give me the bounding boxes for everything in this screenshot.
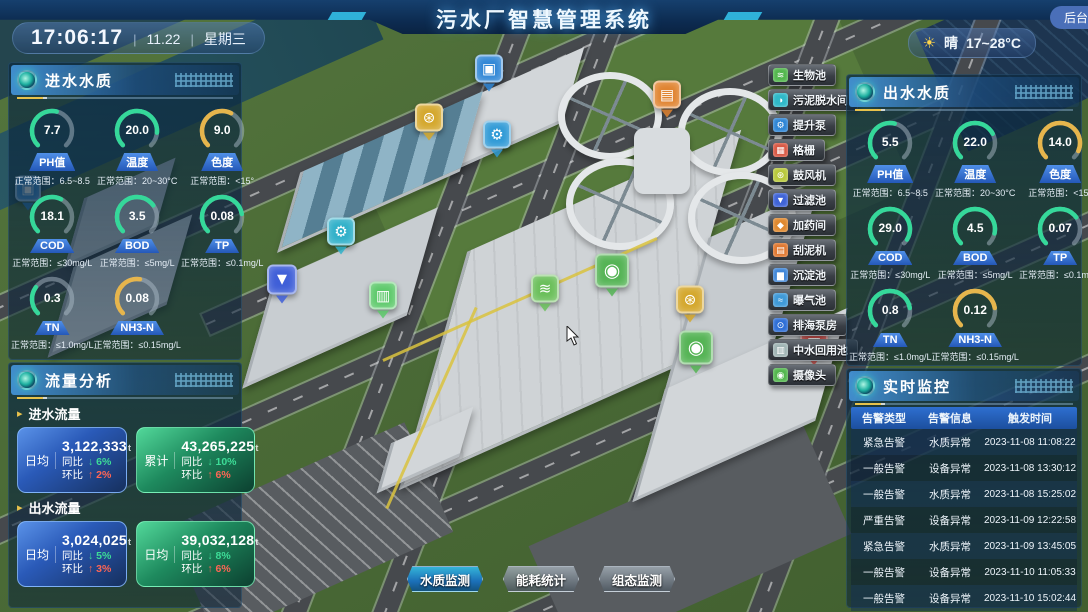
gauge: 0.08 NH3-N 正常范围：≤0.15mg/L [93, 273, 180, 351]
gauge-value: 20.0 [111, 123, 163, 137]
marker-dosing-icon: ▤ [653, 81, 681, 109]
triangle-icon: ▸ [17, 407, 23, 420]
marker-reuse[interactable]: ▥ [369, 282, 397, 325]
mouse-cursor [566, 326, 582, 351]
gauge: 9.0 色度 正常范围：<15° [181, 105, 263, 187]
gauge-range: 正常范围：≤30mg/L [12, 256, 92, 269]
alarm-type: 一般告警 [851, 591, 917, 606]
section-emblem-icon [17, 70, 37, 90]
grid-screen-icon: ▦ [773, 143, 788, 157]
gauge-range: 正常范围：<15° [1028, 186, 1088, 199]
flow-group-label: ▸ 进水流量 [17, 404, 233, 423]
gauge-value: 18.1 [26, 209, 78, 223]
marker-fan[interactable]: ⊛ [415, 104, 443, 147]
compare-label: 同比 [62, 550, 83, 563]
gauge-label: PH值 [29, 153, 75, 171]
section-underline [17, 97, 233, 99]
section-title: 出水水质 [883, 82, 951, 103]
facility-label: 格栅 [793, 142, 815, 158]
marker-pointer [690, 366, 702, 380]
tab-water-quality-monitor[interactable]: 水质监测 [407, 566, 483, 592]
alarm-time: 2023-11-09 13:45:05 [983, 541, 1077, 552]
flow-compare-row: 环比 ↑ 2% [62, 469, 131, 482]
gauge-range: 正常范围：20~30°C [97, 174, 177, 187]
marker-pool[interactable]: ≋ [531, 275, 559, 318]
section-title: 流量分析 [45, 370, 113, 391]
gauge-value: 5.5 [864, 135, 916, 149]
sun-icon: ☀ [923, 34, 936, 52]
flow-compare-row: 环比 ↑ 6% [181, 563, 258, 576]
facility-label: 摄像头 [793, 367, 826, 383]
marker-filter-icon: ▼ [267, 265, 297, 295]
gauge-range: 正常范围：≤5mg/L [100, 256, 175, 269]
arrow-up-icon: ↑ 6% [207, 563, 230, 576]
section-emblem-icon [17, 370, 37, 390]
gauge: 7.7 PH值 正常范围：6.5~8.5 [11, 105, 93, 187]
flow-value: 3,024,025t [62, 532, 131, 550]
alarm-time: 2023-11-08 11:08:22 [983, 437, 1077, 448]
alarm-time: 2023-11-10 15:02:44 [983, 593, 1077, 604]
alarm-row: 紧急告警 水质异常 2023-11-09 13:45:05 [851, 533, 1077, 559]
gauge: 20.0 温度 正常范围：20~30°C [93, 105, 180, 187]
facility-camera[interactable]: ◉ 摄像头 [768, 364, 836, 386]
gauge-range: 正常范围：6.5~8.5 [15, 174, 90, 187]
section-title: 实时监控 [883, 376, 951, 397]
gauge-label: PH值 [867, 165, 913, 183]
marker-pointer [335, 247, 347, 261]
alarm-column-header: 告警类型 [851, 410, 917, 426]
facility-label: 加药间 [793, 217, 826, 233]
facility-sea-pump[interactable]: ⊙ 排海泵房 [768, 314, 847, 336]
marker-camera[interactable]: ◉ [595, 254, 629, 303]
flow-card: 日均 39,032,128t 同比 ↓ 8% 环比 ↑ 6% [136, 521, 254, 587]
clock-date: 11.22 [146, 31, 180, 47]
alarm-time: 2023-11-08 15:25:02 [983, 489, 1077, 500]
gauge-value: 0.3 [26, 291, 78, 305]
marker-fan-icon: ⊛ [676, 286, 704, 314]
gauge-dial: 0.07 [1034, 203, 1086, 255]
weather-condition: 晴 [944, 33, 958, 53]
gauge: 0.08 TP 正常范围：≤0.1mg/L [181, 191, 263, 269]
arrow-down-icon: ↓ 6% [88, 456, 111, 469]
bottom-tab-bar: 水质监测能耗统计组态监测 [407, 566, 675, 592]
flow-card-data: 43,265,225t 同比 ↓ 10% 环比 ↑ 6% [181, 438, 258, 482]
flow-group-label: ▸ 出水流量 [17, 498, 233, 517]
flow-metric-label: 累计 [144, 452, 175, 469]
marker-fan-icon: ⊛ [415, 104, 443, 132]
flow-compare-row: 同比 ↓ 6% [62, 456, 131, 469]
facility-blower-fan[interactable]: ⊛ 鼓风机 [768, 164, 836, 186]
alarm-column-header: 触发时间 [983, 410, 1077, 426]
alarm-table-body: 紧急告警 水质异常 2023-11-08 11:08:22一般告警 设备异常 2… [847, 429, 1081, 611]
marker-filter[interactable]: ▼ [267, 265, 297, 310]
gauge-dial: 5.5 [864, 117, 916, 169]
facility-label: 沉淀池 [793, 267, 826, 283]
alarm-row: 一般告警 设备异常 2023-11-10 11:05:33 [851, 559, 1077, 585]
flow-compare-row: 同比 ↓ 10% [181, 456, 258, 469]
flow-group-title: 出水流量 [29, 498, 81, 517]
facility-mud-scraper[interactable]: ▤ 刮泥机 [768, 239, 836, 261]
clarifier-tank [678, 88, 782, 176]
flow-groups: ▸ 进水流量 日均 3,122,333t 同比 ↓ 6% 环比 ↑ 2% 累计 [9, 404, 241, 587]
compare-label: 环比 [62, 469, 83, 482]
facility-label: 中水回用池 [793, 342, 848, 358]
facility-reuse-pool[interactable]: ▥ 中水回用池 [768, 339, 858, 361]
section-underline [855, 109, 1073, 111]
gauge: 18.1 COD 正常范围：≤30mg/L [11, 191, 93, 269]
marker-pointer [539, 304, 551, 318]
flow-cards: 日均 3,122,333t 同比 ↓ 6% 环比 ↑ 2% 累计 43,265,… [17, 427, 233, 493]
flow-analysis-panel: 流量分析 ▸ 进水流量 日均 3,122,333t 同比 ↓ 6% 环比 ↑ 2… [8, 362, 242, 608]
marker-pump[interactable]: ⚙ [483, 121, 511, 164]
marker-pointer [491, 150, 503, 164]
marker-pool-icon: ▣ [475, 55, 503, 83]
weather-widget: ☀ 晴 17~28°C [908, 28, 1036, 58]
alarm-time: 2023-11-10 11:05:33 [983, 567, 1077, 578]
gauge-range: 正常范围：≤30mg/L [850, 268, 930, 281]
alarm-type: 一般告警 [851, 565, 917, 580]
gauge-dial: 22.0 [949, 117, 1001, 169]
facility-legend: ≋ 生物池◑ 污泥脱水间⚙ 提升泵▦ 格栅⊛ 鼓风机▼ 过滤池◆ 加药间▤ 刮泥… [768, 64, 858, 386]
gauge: 14.0 色度 正常范围：<15° [1019, 117, 1088, 199]
facility-filter-pool[interactable]: ▼ 过滤池 [768, 189, 836, 211]
section-underline [855, 403, 1073, 405]
clock-weekday: 星期三 [204, 29, 246, 49]
marker-pump[interactable]: ⚙ [327, 218, 355, 261]
arrow-down-icon: ↓ 10% [207, 456, 236, 469]
gauge-range: 正常范围：≤1.0mg/L [11, 338, 93, 351]
separator: | [133, 32, 136, 47]
header-accent-right [724, 12, 763, 20]
gauge-dial: 14.0 [1034, 117, 1086, 169]
marker-pump-icon: ⚙ [483, 121, 511, 149]
compare-label: 同比 [62, 456, 83, 469]
facility-label: 污泥脱水间 [793, 92, 848, 108]
triangle-icon: ▸ [17, 501, 23, 514]
flow-compare-row: 环比 ↑ 3% [62, 563, 131, 576]
gauge-dial: 0.12 [949, 285, 1001, 337]
central-hub-building [634, 128, 690, 194]
backend-button[interactable]: 后台 [1050, 6, 1088, 29]
flow-metric-label: 日均 [25, 546, 56, 563]
gauge-range: 正常范围：20~30°C [935, 186, 1015, 199]
alarm-table-header: 告警类型告警信息触发时间 [851, 407, 1077, 429]
gauge-dial: 29.0 [864, 203, 916, 255]
flow-card: 日均 3,024,025t 同比 ↓ 5% 环比 ↑ 3% [17, 521, 127, 587]
flow-value: 39,032,128t [181, 532, 258, 550]
marker-pump-icon: ⚙ [327, 218, 355, 246]
marker-pool-icon: ≋ [531, 275, 559, 303]
marker-pointer [606, 289, 618, 303]
alarm-type: 严重告警 [851, 513, 917, 528]
gauge-value: 0.08 [196, 209, 248, 223]
flow-card: 累计 43,265,225t 同比 ↓ 10% 环比 ↑ 6% [136, 427, 254, 493]
aeration-pool-icon: ≈ [773, 293, 788, 307]
clock-time: 17:06:17 [31, 26, 123, 50]
dots-decoration [175, 73, 233, 87]
section-header: 流量分析 [11, 365, 239, 395]
tab-energy-stats[interactable]: 能耗统计 [503, 566, 579, 592]
marker-camera-icon: ◉ [679, 331, 713, 365]
facility-dosing-room[interactable]: ◆ 加药间 [768, 214, 836, 236]
gauge: 22.0 温度 正常范围：20~30°C [931, 117, 1018, 199]
marker-pointer [684, 315, 696, 329]
outlet-gauge-grid: 5.5 PH值 正常范围：6.5~8.5 22.0 温度 正常范围：20~30°… [847, 113, 1081, 367]
marker-camera[interactable]: ◉ [679, 331, 713, 380]
gauge: 29.0 COD 正常范围：≤30mg/L [849, 203, 931, 281]
flow-compare-row: 环比 ↑ 6% [181, 469, 258, 482]
marker-pointer [377, 311, 389, 325]
gauge-dial: 3.5 [111, 191, 163, 243]
gauge-range: 正常范围：≤0.15mg/L [931, 350, 1018, 363]
separator: | [190, 32, 193, 47]
flow-card-data: 3,024,025t 同比 ↓ 5% 环比 ↑ 3% [62, 532, 131, 576]
flow-compare-row: 同比 ↓ 5% [62, 550, 131, 563]
gauge: 0.12 NH3-N 正常范围：≤0.15mg/L [931, 285, 1018, 363]
facility-sediment-pool[interactable]: ▆ 沉淀池 [768, 264, 836, 286]
marker-pointer [423, 133, 435, 147]
flow-value: 43,265,225t [181, 438, 258, 456]
facility-label: 刮泥机 [793, 242, 826, 258]
alarm-info: 设备异常 [917, 591, 983, 606]
arrow-down-icon: ↓ 5% [88, 550, 111, 563]
dots-decoration [175, 373, 233, 387]
gauge-dial: 0.08 [111, 273, 163, 325]
alarm-row: 紧急告警 水质异常 2023-11-08 11:08:22 [851, 429, 1077, 455]
blower-fan-icon: ⊛ [773, 168, 788, 182]
alarm-row: 严重告警 设备异常 2023-11-09 12:22:58 [851, 507, 1077, 533]
compare-label: 环比 [62, 563, 83, 576]
arrow-down-icon: ↓ 8% [207, 550, 230, 563]
gauge-label: NH3-N [948, 333, 1002, 347]
facility-label: 排海泵房 [793, 317, 837, 333]
alarm-time: 2023-11-08 13:30:12 [983, 463, 1077, 474]
gauge-dial: 9.0 [196, 105, 248, 157]
flow-card-data: 39,032,128t 同比 ↓ 8% 环比 ↑ 6% [181, 532, 258, 576]
marker-pointer [661, 110, 673, 124]
section-underline [17, 397, 233, 399]
gauge: 0.07 TP 正常范围：≤0.1mg/L [1019, 203, 1088, 281]
dosing-room-icon: ◆ [773, 218, 788, 232]
section-emblem-icon [855, 376, 875, 396]
sea-pump-icon: ⊙ [773, 318, 788, 332]
alarm-info: 水质异常 [917, 539, 983, 554]
gauge-range: 正常范围：≤0.15mg/L [93, 338, 180, 351]
marker-pool[interactable]: ▣ [475, 55, 503, 98]
section-header: 出水水质 [849, 77, 1079, 107]
gauge-range: 正常范围：≤5mg/L [938, 268, 1013, 281]
marker-pointer [483, 84, 495, 98]
gauge: 5.5 PH值 正常范围：6.5~8.5 [849, 117, 931, 199]
alarm-info: 设备异常 [917, 461, 983, 476]
gauge-dial: 20.0 [111, 105, 163, 157]
alarm-row: 一般告警 设备异常 2023-11-08 13:30:12 [851, 455, 1077, 481]
marker-dosing[interactable]: ▤ [653, 81, 681, 124]
tab-config-monitor[interactable]: 组态监测 [599, 566, 675, 592]
facility-sludge-dewater[interactable]: ◑ 污泥脱水间 [768, 89, 858, 111]
gauge-dial: 0.08 [196, 191, 248, 243]
mud-scraper-icon: ▤ [773, 243, 788, 257]
alarm-type: 一般告警 [851, 461, 917, 476]
gauge-label: NH3-N [110, 321, 164, 335]
flow-value: 3,122,333t [62, 438, 131, 456]
alarm-info: 设备异常 [917, 565, 983, 580]
alarm-type: 一般告警 [851, 487, 917, 502]
gauge-range: 正常范围：≤0.1mg/L [181, 256, 263, 269]
gauge-range: 正常范围：≤1.0mg/L [849, 350, 931, 363]
section-emblem-icon [855, 82, 875, 102]
alarm-type: 紧急告警 [851, 539, 917, 554]
outlet-quality-panel: 出水水质 5.5 PH值 正常范围：6.5~8.5 22.0 温度 正常范围：2… [846, 74, 1082, 366]
gauge-value: 4.5 [949, 221, 1001, 235]
arrow-up-icon: ↑ 6% [207, 469, 230, 482]
facility-label: 生物池 [793, 67, 826, 83]
gauge-value: 0.07 [1034, 221, 1086, 235]
facility-lift-pump[interactable]: ⚙ 提升泵 [768, 114, 836, 136]
gauge-value: 22.0 [949, 135, 1001, 149]
gauge-dial: 7.7 [26, 105, 78, 157]
sludge-dewater-icon: ◑ [773, 93, 788, 107]
alarm-info: 设备异常 [917, 513, 983, 528]
gauge: 0.3 TN 正常范围：≤1.0mg/L [11, 273, 93, 351]
gauge-value: 0.08 [111, 291, 163, 305]
gauge-dial: 0.8 [864, 285, 916, 337]
gauge-value: 3.5 [111, 209, 163, 223]
alarm-row: 一般告警 水质异常 2023-11-08 15:25:02 [851, 481, 1077, 507]
facility-bio-pool[interactable]: ≋ 生物池 [768, 64, 836, 86]
marker-camera-icon: ◉ [595, 254, 629, 288]
compare-label: 环比 [181, 469, 202, 482]
alarm-row: 一般告警 设备异常 2023-11-10 15:02:44 [851, 585, 1077, 611]
bio-pool-icon: ≋ [773, 68, 788, 82]
flow-group: ▸ 进水流量 日均 3,122,333t 同比 ↓ 6% 环比 ↑ 2% 累计 [9, 404, 241, 493]
compare-label: 同比 [181, 456, 202, 469]
flow-group: ▸ 出水流量 日均 3,024,025t 同比 ↓ 5% 环比 ↑ 3% 日均 [9, 498, 241, 587]
gauge-value: 0.8 [864, 303, 916, 317]
arrow-up-icon: ↑ 3% [88, 563, 111, 576]
gauge-dial: 0.3 [26, 273, 78, 325]
dots-decoration [1015, 85, 1073, 99]
gauge: 3.5 BOD 正常范围：≤5mg/L [93, 191, 180, 269]
weather-temp-range: 17~28°C [966, 35, 1021, 51]
gauge-value: 0.12 [949, 303, 1001, 317]
camera-icon: ◉ [773, 368, 788, 382]
gauge-range: 正常范围：<15° [190, 174, 254, 187]
section-header: 实时监控 [849, 371, 1079, 401]
gauge-range: 正常范围：6.5~8.5 [853, 186, 928, 199]
flow-group-title: 进水流量 [29, 404, 81, 423]
gauge-range: 正常范围：≤0.1mg/L [1019, 268, 1088, 281]
header-accent-left [328, 12, 367, 20]
realtime-monitoring-panel: 实时监控 告警类型告警信息触发时间 紧急告警 水质异常 2023-11-08 1… [846, 368, 1082, 608]
dashboard-root: ▣ ⊛ ⚙ ▤ ▣ ⚙ ▼ ▥ ≋ ◉ ⊛ ◉ ▦ 污水厂智慧管理系统 17:0… [0, 0, 1088, 612]
marker-fan[interactable]: ⊛ [676, 286, 704, 329]
clock-bar: 17:06:17 | 11.22 | 星期三 [12, 22, 265, 54]
alarm-info: 水质异常 [917, 435, 983, 450]
flow-metric-label: 日均 [25, 452, 56, 469]
inlet-quality-panel: 进水水质 7.7 PH值 正常范围：6.5~8.5 20.0 温度 正常范围：2… [8, 62, 242, 360]
facility-grid-screen[interactable]: ▦ 格栅 [768, 139, 825, 161]
gauge-value: 14.0 [1034, 135, 1086, 149]
alarm-column-header: 告警信息 [917, 410, 983, 426]
gauge-value: 7.7 [26, 123, 78, 137]
flow-card-data: 3,122,333t 同比 ↓ 6% 环比 ↑ 2% [62, 438, 131, 482]
gauge-value: 29.0 [864, 221, 916, 235]
reuse-pool-icon: ▥ [773, 343, 788, 357]
section-header: 进水水质 [11, 65, 239, 95]
section-title: 进水水质 [45, 70, 113, 91]
gauge: 4.5 BOD 正常范围：≤5mg/L [931, 203, 1018, 281]
facility-label: 过滤池 [793, 192, 826, 208]
flow-compare-row: 同比 ↓ 8% [181, 550, 258, 563]
inlet-gauge-grid: 7.7 PH值 正常范围：6.5~8.5 20.0 温度 正常范围：20~30°… [9, 101, 241, 355]
facility-label: 提升泵 [793, 117, 826, 133]
compare-label: 同比 [181, 550, 202, 563]
gauge-dial: 18.1 [26, 191, 78, 243]
flow-cards: 日均 3,024,025t 同比 ↓ 5% 环比 ↑ 3% 日均 39,032,… [17, 521, 233, 587]
alarm-time: 2023-11-09 12:22:58 [983, 515, 1077, 526]
compare-label: 环比 [181, 563, 202, 576]
alarm-type: 紧急告警 [851, 435, 917, 450]
flow-metric-label: 日均 [144, 546, 175, 563]
facility-label: 鼓风机 [793, 167, 826, 183]
lift-pump-icon: ⚙ [773, 118, 788, 132]
marker-pointer [276, 296, 288, 310]
flow-card: 日均 3,122,333t 同比 ↓ 6% 环比 ↑ 2% [17, 427, 127, 493]
facility-label: 曝气池 [793, 292, 826, 308]
marker-reuse-icon: ▥ [369, 282, 397, 310]
arrow-up-icon: ↑ 2% [88, 469, 111, 482]
alarm-info: 水质异常 [917, 487, 983, 502]
dots-decoration [1015, 379, 1073, 393]
gauge-value: 9.0 [196, 123, 248, 137]
facility-aeration-pool[interactable]: ≈ 曝气池 [768, 289, 836, 311]
filter-pool-icon: ▼ [773, 193, 788, 207]
sediment-pool-icon: ▆ [773, 268, 788, 282]
gauge: 0.8 TN 正常范围：≤1.0mg/L [849, 285, 931, 363]
gauge-dial: 4.5 [949, 203, 1001, 255]
